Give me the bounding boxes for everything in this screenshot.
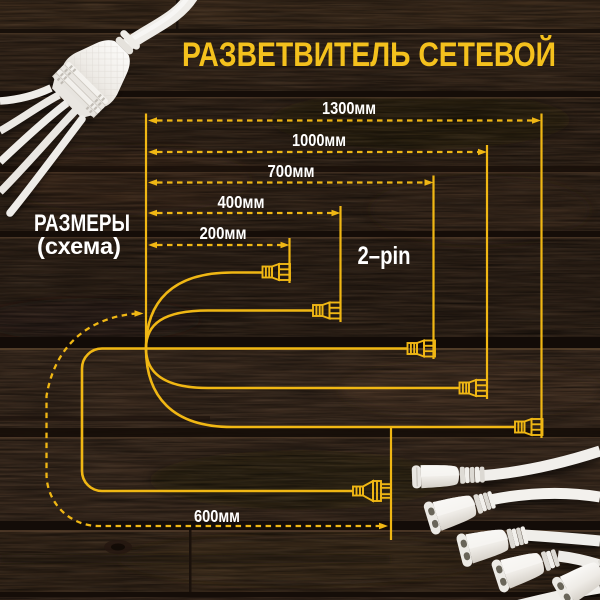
svg-text:200мм: 200мм bbox=[200, 223, 247, 243]
svg-text:600мм: 600мм bbox=[194, 506, 240, 526]
svg-text:400мм: 400мм bbox=[218, 192, 265, 212]
svg-text:700мм: 700мм bbox=[268, 161, 315, 181]
svg-text:РАЗВЕТВИТЕЛЬ СЕТЕВОЙ: РАЗВЕТВИТЕЛЬ СЕТЕВОЙ bbox=[182, 35, 556, 74]
svg-text:(схема): (схема) bbox=[37, 233, 121, 259]
svg-text:2–pin: 2–pin bbox=[358, 242, 411, 270]
svg-text:1000мм: 1000мм bbox=[292, 130, 346, 150]
svg-text:1300мм: 1300мм bbox=[322, 98, 376, 118]
